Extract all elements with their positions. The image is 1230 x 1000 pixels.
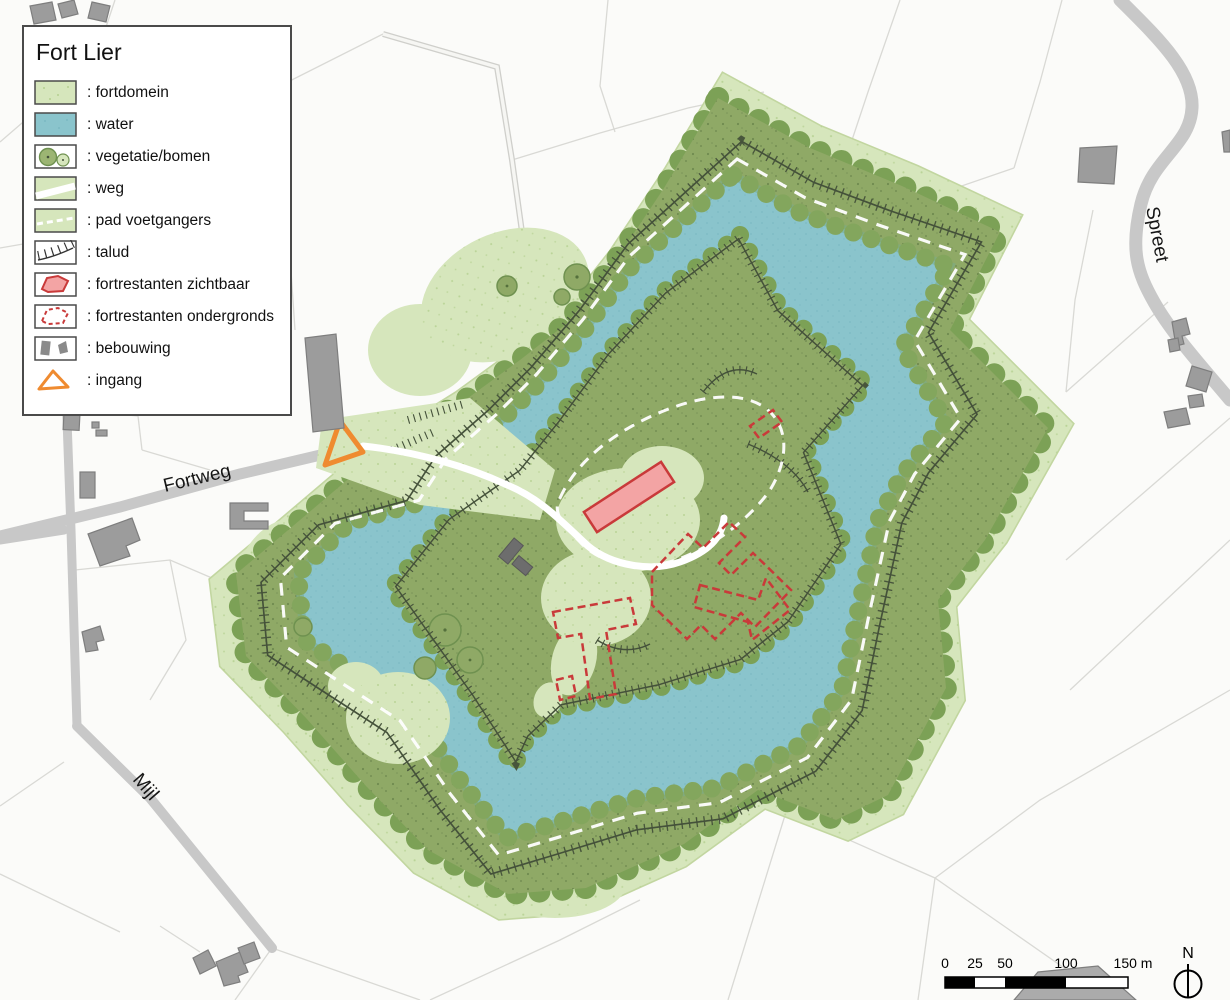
legend-label: : weg — [87, 180, 124, 198]
scale-tick-25: 25 — [967, 955, 983, 971]
scale-tick-0: 0 — [941, 955, 949, 971]
legend-item-talud: : talud — [34, 240, 278, 265]
fort-lier-map-page: Fortweg Mijl Spreet 0 25 50 100 150 m N … — [0, 0, 1230, 1000]
vegetation-trees-swatch-icon — [34, 144, 77, 169]
legend-label: : fortrestanten zichtbaar — [87, 276, 250, 294]
legend-item-fortrestanten-ondergronds: : fortrestanten ondergronds — [34, 304, 278, 329]
legend-label: : fortdomein — [87, 84, 169, 102]
talud-swatch-icon — [34, 240, 77, 265]
legend-item-pad-voetgangers: : pad voetgangers — [34, 208, 278, 233]
legend-item-ingang: : ingang — [34, 368, 278, 393]
remains-visible-swatch-icon — [34, 272, 77, 297]
legend-item-weg: : weg — [34, 176, 278, 201]
scale-tick-50: 50 — [997, 955, 1013, 971]
legend-item-bebouwing: : bebouwing — [34, 336, 278, 361]
legend-panel: Fort Lier : fortdomein : water : vegetat… — [22, 25, 292, 416]
footpath-swatch-icon — [34, 208, 77, 233]
water-swatch-icon — [34, 112, 77, 137]
legend-item-vegetatie-bomen: : vegetatie/bomen — [34, 144, 278, 169]
remains-underground-swatch-icon — [34, 304, 77, 329]
scale-tick-150: 150 m — [1114, 955, 1153, 971]
entrance-swatch-icon — [34, 368, 77, 393]
legend-label: : water — [87, 116, 134, 134]
legend-label: : ingang — [87, 372, 142, 390]
legend-label: : bebouwing — [87, 340, 171, 358]
fortdomein-swatch-icon — [34, 80, 77, 105]
scale-tick-100: 100 — [1054, 955, 1078, 971]
legend-title: Fort Lier — [36, 39, 278, 66]
legend-item-fortdomein: : fortdomein — [34, 80, 278, 105]
road-swatch-icon — [34, 176, 77, 201]
legend-item-water: : water — [34, 112, 278, 137]
north-label: N — [1182, 945, 1194, 962]
legend-label: : pad voetgangers — [87, 212, 211, 230]
buildings-swatch-icon — [34, 336, 77, 361]
legend-item-fortrestanten-zichtbaar: : fortrestanten zichtbaar — [34, 272, 278, 297]
legend-label: : vegetatie/bomen — [87, 148, 210, 166]
legend-label: : talud — [87, 244, 129, 262]
legend-label: : fortrestanten ondergronds — [87, 308, 274, 326]
